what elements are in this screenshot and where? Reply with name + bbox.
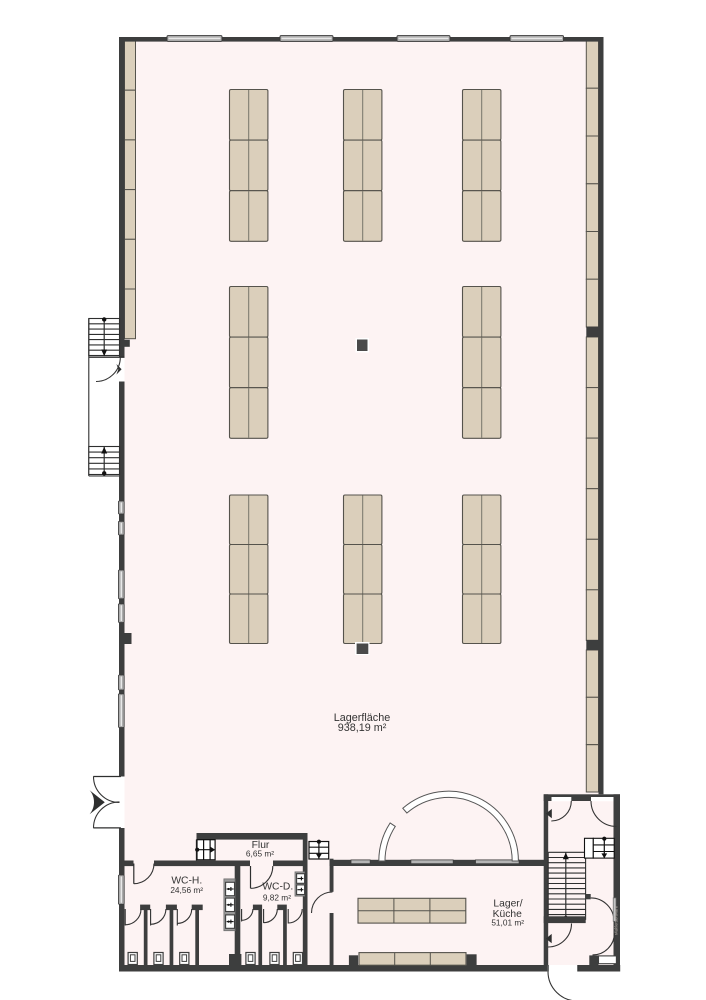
svg-text:6,65 m²: 6,65 m² xyxy=(246,849,274,859)
svg-text:24,56 m²: 24,56 m² xyxy=(170,885,203,895)
svg-text:Maklersoftware: Maklersoftware xyxy=(613,905,618,935)
svg-text:Lager/: Lager/ xyxy=(493,898,522,909)
svg-text:WC-D.: WC-D. xyxy=(262,881,293,892)
svg-text:51,01 m²: 51,01 m² xyxy=(491,917,524,927)
svg-text:938,19 m²: 938,19 m² xyxy=(338,722,387,734)
svg-text:9,82 m²: 9,82 m² xyxy=(263,892,291,902)
